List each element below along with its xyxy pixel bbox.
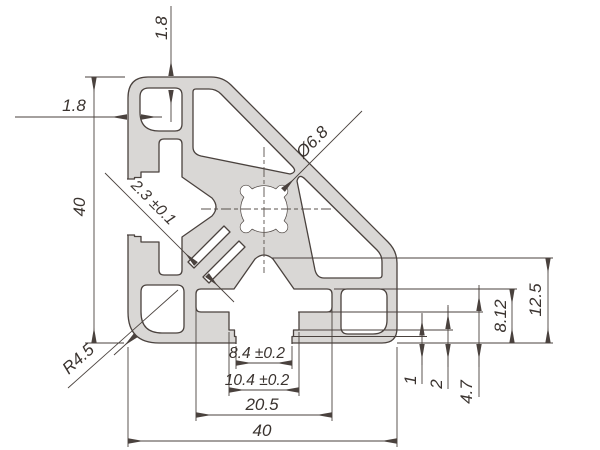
- dim-lip-step-2: 2: [427, 305, 448, 390]
- dim-top-wall-label: 1.8: [152, 16, 171, 40]
- chamber-bottom-right: [341, 289, 387, 334]
- dim-slot-opening-label: 8.4 ±0.2: [229, 345, 285, 362]
- chamber-bottom-left: [141, 285, 184, 333]
- dim-slot-opening: 8.4 ±0.2: [229, 345, 292, 369]
- dim-overall-height-label: 40: [70, 197, 89, 216]
- dim-lip-height-label: 4.7: [457, 380, 476, 404]
- dim-cavity-height: 8.12: [491, 289, 512, 343]
- dim-slot-cavity-width-label: 20.5: [244, 395, 279, 414]
- dim-side-wall-label: 1.8: [62, 96, 86, 115]
- dim-slot-throat-label: 10.4 ±0.2: [225, 372, 290, 389]
- dim-side-face-height: 12.5: [526, 258, 548, 343]
- dim-overall-width-label: 40: [253, 421, 272, 440]
- dim-lip-step-1-label: 1: [401, 375, 420, 384]
- dim-cavity-height-label: 8.12: [491, 299, 510, 333]
- dim-lip-step-1: 1: [401, 313, 422, 385]
- dim-lip-height: 4.7: [457, 285, 479, 404]
- dim-corner-radius-label: R4.5: [59, 339, 99, 378]
- chamber-top-left: [140, 88, 182, 131]
- dim-side-face-height-label: 12.5: [526, 283, 545, 317]
- technical-drawing-canvas: 40 1.8 1.8 2.3 ±0.1 Ø6.8 R4: [0, 0, 600, 450]
- dim-lip-step-2-label: 2: [427, 379, 446, 390]
